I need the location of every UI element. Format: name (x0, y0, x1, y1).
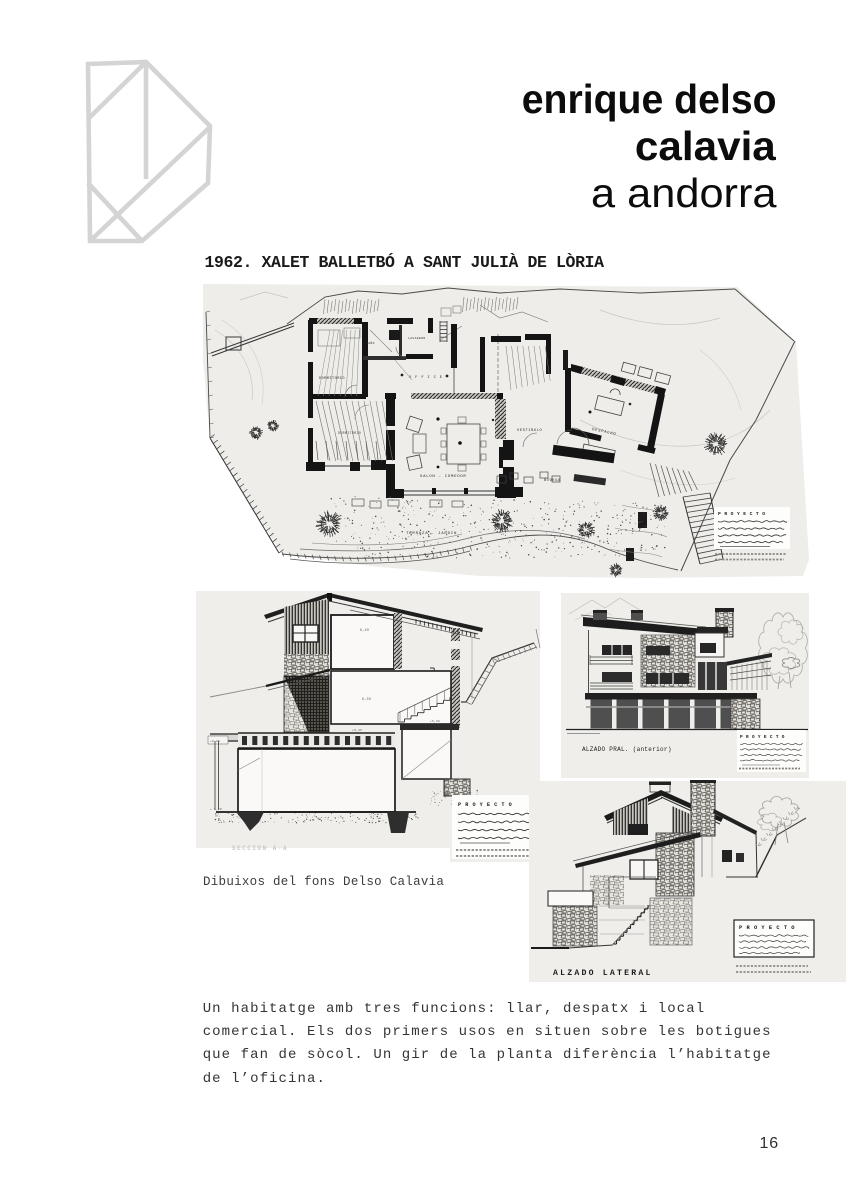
svg-text:SALON - COMEDOR: SALON - COMEDOR (420, 475, 467, 479)
svg-text:P R O Y E C T O: P R O Y E C T O (740, 735, 785, 740)
svg-text:DORMITORIO: DORMITORIO (338, 431, 361, 435)
svg-text:+5,45: +5,45 (352, 729, 362, 732)
svg-text:+ 5,70: + 5,70 (210, 808, 222, 811)
svg-text:TERRAZA - JARDIN: TERRAZA - JARDIN (406, 532, 457, 536)
svg-text:+5,60: +5,60 (430, 720, 440, 723)
svg-text:6,40: 6,40 (360, 628, 369, 632)
svg-text:P R O Y E C T O: P R O Y E C T O (739, 925, 795, 931)
svg-text:P R O Y E C T O: P R O Y E C T O (458, 802, 512, 808)
svg-text:6,00: 6,00 (362, 697, 371, 701)
svg-text:DORMITORIO: DORMITORIO (319, 377, 345, 381)
svg-text:ALZADO PRAL. (anterior): ALZADO PRAL. (anterior) (582, 746, 672, 753)
svg-text:ALZADO LATERAL: ALZADO LATERAL (553, 969, 653, 978)
svg-text:LAVADERO: LAVADERO (408, 337, 426, 340)
svg-text:BODEGA: BODEGA (544, 479, 561, 483)
svg-text:BAÑO: BAÑO (366, 341, 375, 345)
svg-text:SECCION A-A: SECCION A-A (232, 845, 288, 852)
svg-text:VESTIBULO: VESTIBULO (517, 429, 543, 433)
svg-text:P R O Y E C T O: P R O Y E C T O (718, 511, 765, 517)
svg-text:O F F I C E: O F F I C E (409, 376, 443, 380)
